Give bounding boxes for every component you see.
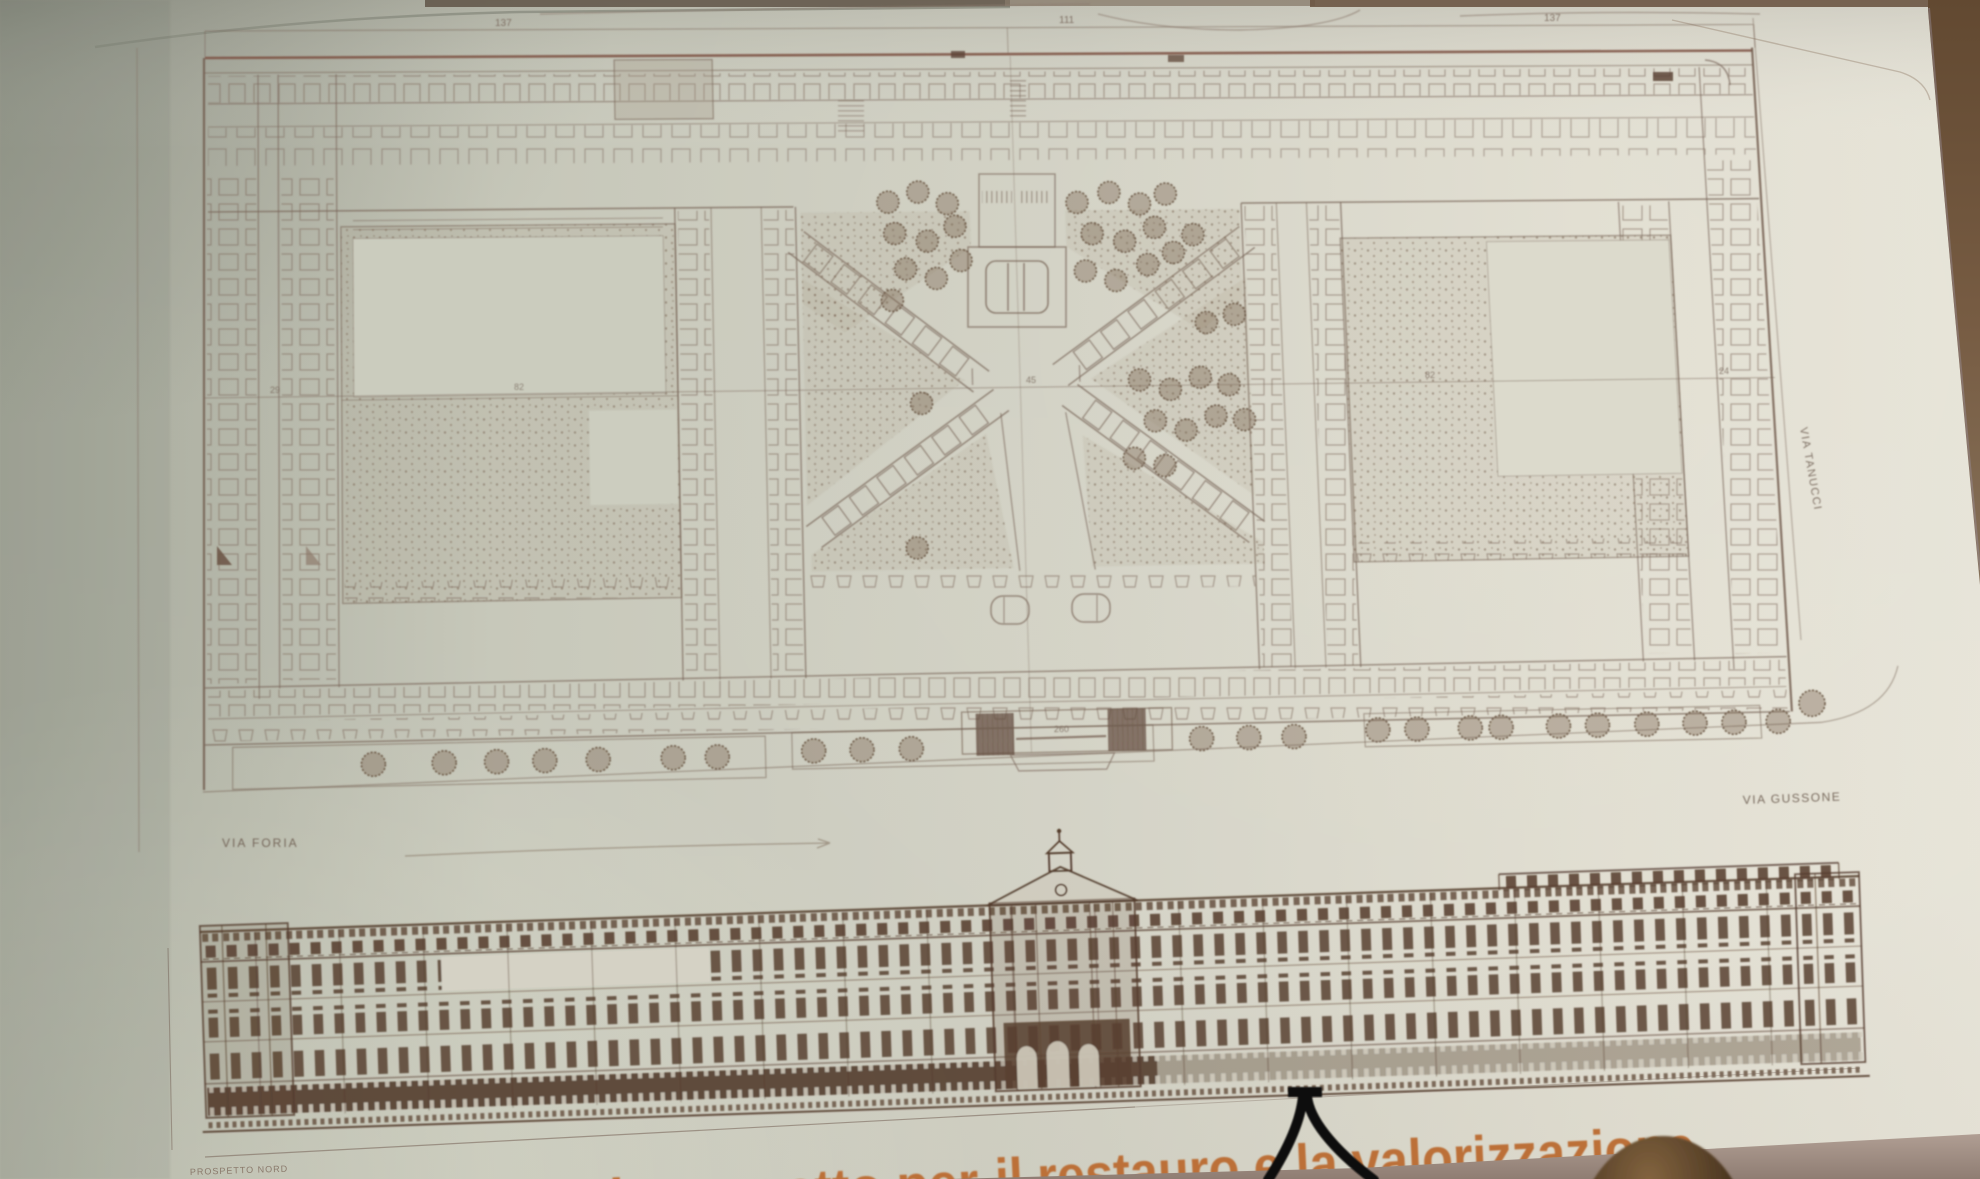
- svg-text:137: 137: [1544, 13, 1561, 24]
- svg-text:111: 111: [1059, 15, 1075, 26]
- svg-text:29: 29: [270, 385, 280, 395]
- svg-text:45: 45: [1026, 375, 1036, 385]
- svg-text:260: 260: [1054, 724, 1069, 734]
- svg-text:137: 137: [495, 18, 512, 29]
- svg-text:82: 82: [1425, 370, 1435, 380]
- svg-text:82: 82: [514, 382, 524, 392]
- svg-text:24: 24: [1719, 366, 1729, 376]
- svg-text:VIA FORIA: VIA FORIA: [222, 836, 299, 850]
